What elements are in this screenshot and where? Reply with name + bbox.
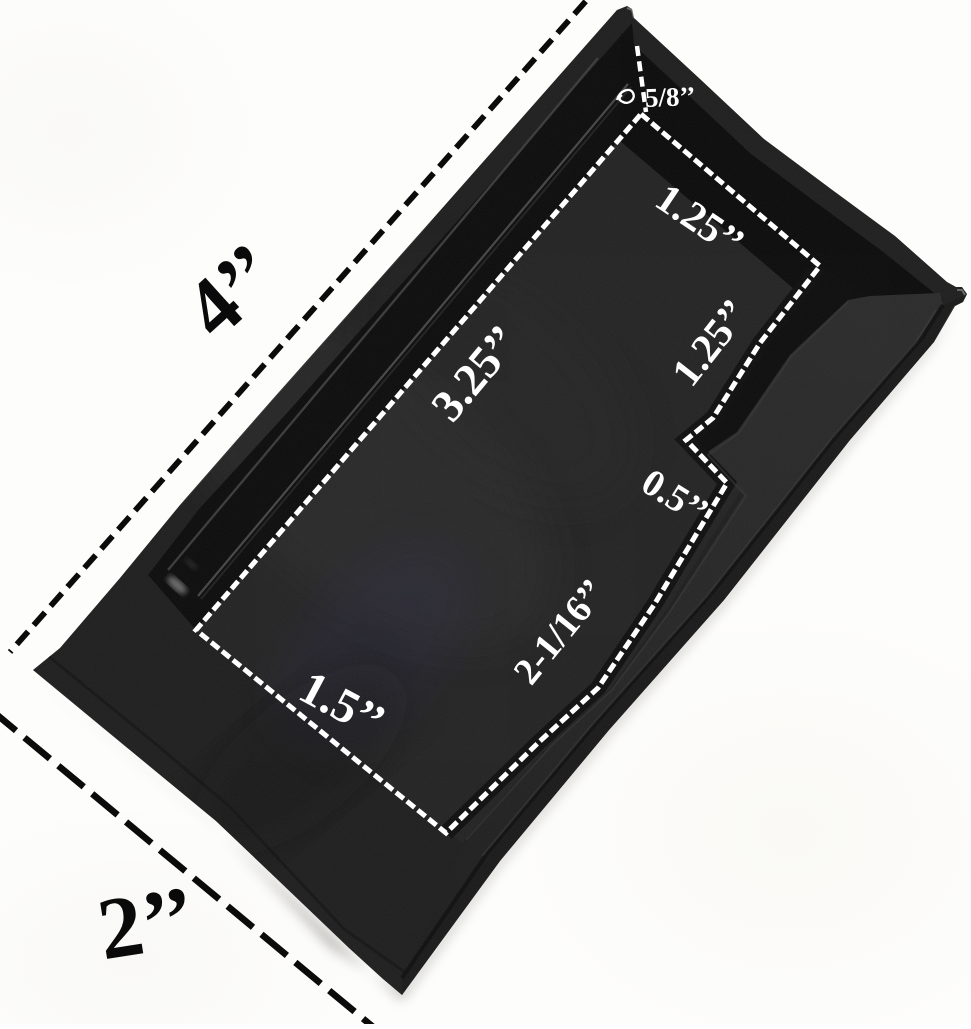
svg-text:5/8’’: 5/8’’ bbox=[644, 81, 696, 113]
svg-text:2’’: 2’’ bbox=[92, 868, 202, 979]
